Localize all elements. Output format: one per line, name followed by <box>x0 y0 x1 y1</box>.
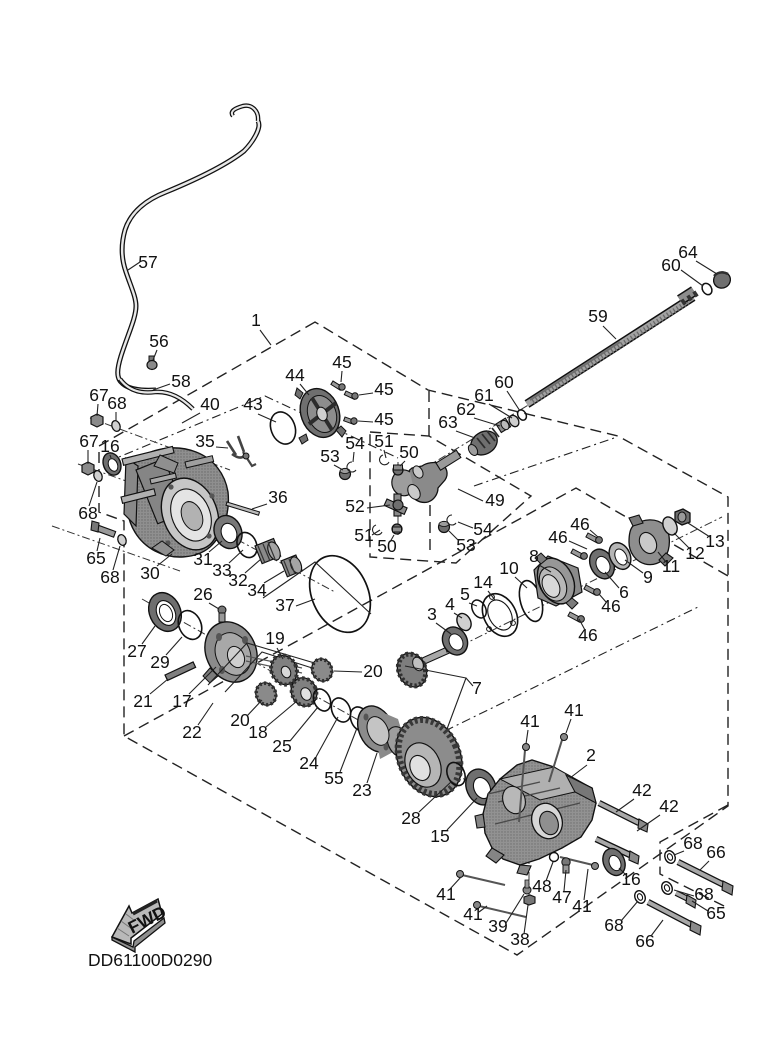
svg-text:46: 46 <box>570 514 589 534</box>
svg-text:54: 54 <box>345 433 365 453</box>
svg-text:29: 29 <box>150 652 169 672</box>
svg-text:51: 51 <box>374 431 393 451</box>
svg-text:35: 35 <box>195 431 214 451</box>
svg-text:23: 23 <box>352 780 371 800</box>
svg-text:65: 65 <box>86 548 105 568</box>
svg-text:19: 19 <box>265 628 284 648</box>
svg-text:8: 8 <box>529 546 539 566</box>
svg-text:41: 41 <box>564 700 583 720</box>
svg-text:63: 63 <box>438 412 457 432</box>
svg-text:32: 32 <box>228 570 247 590</box>
svg-text:50: 50 <box>377 536 397 556</box>
svg-text:58: 58 <box>171 371 190 391</box>
svg-text:68: 68 <box>683 833 702 853</box>
svg-text:9: 9 <box>643 567 653 587</box>
svg-text:46: 46 <box>578 625 597 645</box>
svg-text:56: 56 <box>149 331 168 351</box>
svg-text:68: 68 <box>78 503 97 523</box>
svg-text:64: 64 <box>678 242 698 262</box>
svg-text:51: 51 <box>354 525 373 545</box>
svg-text:60: 60 <box>494 372 514 392</box>
svg-text:46: 46 <box>548 527 567 547</box>
svg-text:68: 68 <box>100 567 119 587</box>
svg-text:44: 44 <box>285 365 305 385</box>
svg-text:7: 7 <box>472 678 482 698</box>
svg-text:21: 21 <box>133 691 152 711</box>
svg-text:26: 26 <box>193 584 212 604</box>
svg-text:48: 48 <box>532 876 551 896</box>
svg-text:67: 67 <box>79 431 98 451</box>
svg-text:68: 68 <box>694 884 713 904</box>
svg-text:11: 11 <box>662 556 680 576</box>
svg-text:57: 57 <box>138 252 157 272</box>
svg-text:22: 22 <box>182 722 201 742</box>
svg-text:59: 59 <box>588 306 607 326</box>
svg-text:41: 41 <box>520 711 539 731</box>
svg-text:43: 43 <box>243 394 262 414</box>
svg-text:49: 49 <box>485 490 504 510</box>
svg-text:36: 36 <box>268 487 287 507</box>
svg-text:53: 53 <box>320 446 339 466</box>
svg-text:17: 17 <box>172 691 191 711</box>
svg-text:16: 16 <box>100 436 119 456</box>
svg-text:38: 38 <box>510 929 529 949</box>
svg-text:DD61100D0290: DD61100D0290 <box>88 950 212 970</box>
svg-text:18: 18 <box>248 722 267 742</box>
svg-text:46: 46 <box>601 596 620 616</box>
svg-text:20: 20 <box>363 661 383 681</box>
svg-text:62: 62 <box>456 399 475 419</box>
svg-text:41: 41 <box>463 904 482 924</box>
svg-text:1: 1 <box>251 310 261 330</box>
svg-text:41: 41 <box>572 896 591 916</box>
svg-text:61: 61 <box>474 385 493 405</box>
svg-text:67: 67 <box>89 385 108 405</box>
svg-text:45: 45 <box>374 409 393 429</box>
svg-text:65: 65 <box>706 903 725 923</box>
svg-text:12: 12 <box>685 543 704 563</box>
svg-text:45: 45 <box>332 352 351 372</box>
svg-text:4: 4 <box>445 594 455 614</box>
svg-text:3: 3 <box>427 604 437 624</box>
svg-text:45: 45 <box>374 379 393 399</box>
svg-text:28: 28 <box>401 808 420 828</box>
svg-text:16: 16 <box>621 869 640 889</box>
svg-text:5: 5 <box>460 584 470 604</box>
svg-text:41: 41 <box>436 884 455 904</box>
svg-text:42: 42 <box>632 780 651 800</box>
svg-text:20: 20 <box>230 710 250 730</box>
svg-text:15: 15 <box>430 826 449 846</box>
svg-text:52: 52 <box>345 496 364 516</box>
svg-text:66: 66 <box>706 842 725 862</box>
svg-text:27: 27 <box>127 641 146 661</box>
svg-text:68: 68 <box>107 393 126 413</box>
svg-text:40: 40 <box>200 394 220 414</box>
svg-text:25: 25 <box>272 736 291 756</box>
svg-text:37: 37 <box>275 595 294 615</box>
svg-text:54: 54 <box>473 519 493 539</box>
svg-text:47: 47 <box>552 887 571 907</box>
svg-text:13: 13 <box>705 531 724 551</box>
svg-text:14: 14 <box>473 572 493 592</box>
svg-text:2: 2 <box>586 745 596 765</box>
svg-text:39: 39 <box>488 916 507 936</box>
svg-text:10: 10 <box>499 558 519 578</box>
svg-text:68: 68 <box>604 915 623 935</box>
svg-text:42: 42 <box>659 796 678 816</box>
svg-text:50: 50 <box>399 442 419 462</box>
